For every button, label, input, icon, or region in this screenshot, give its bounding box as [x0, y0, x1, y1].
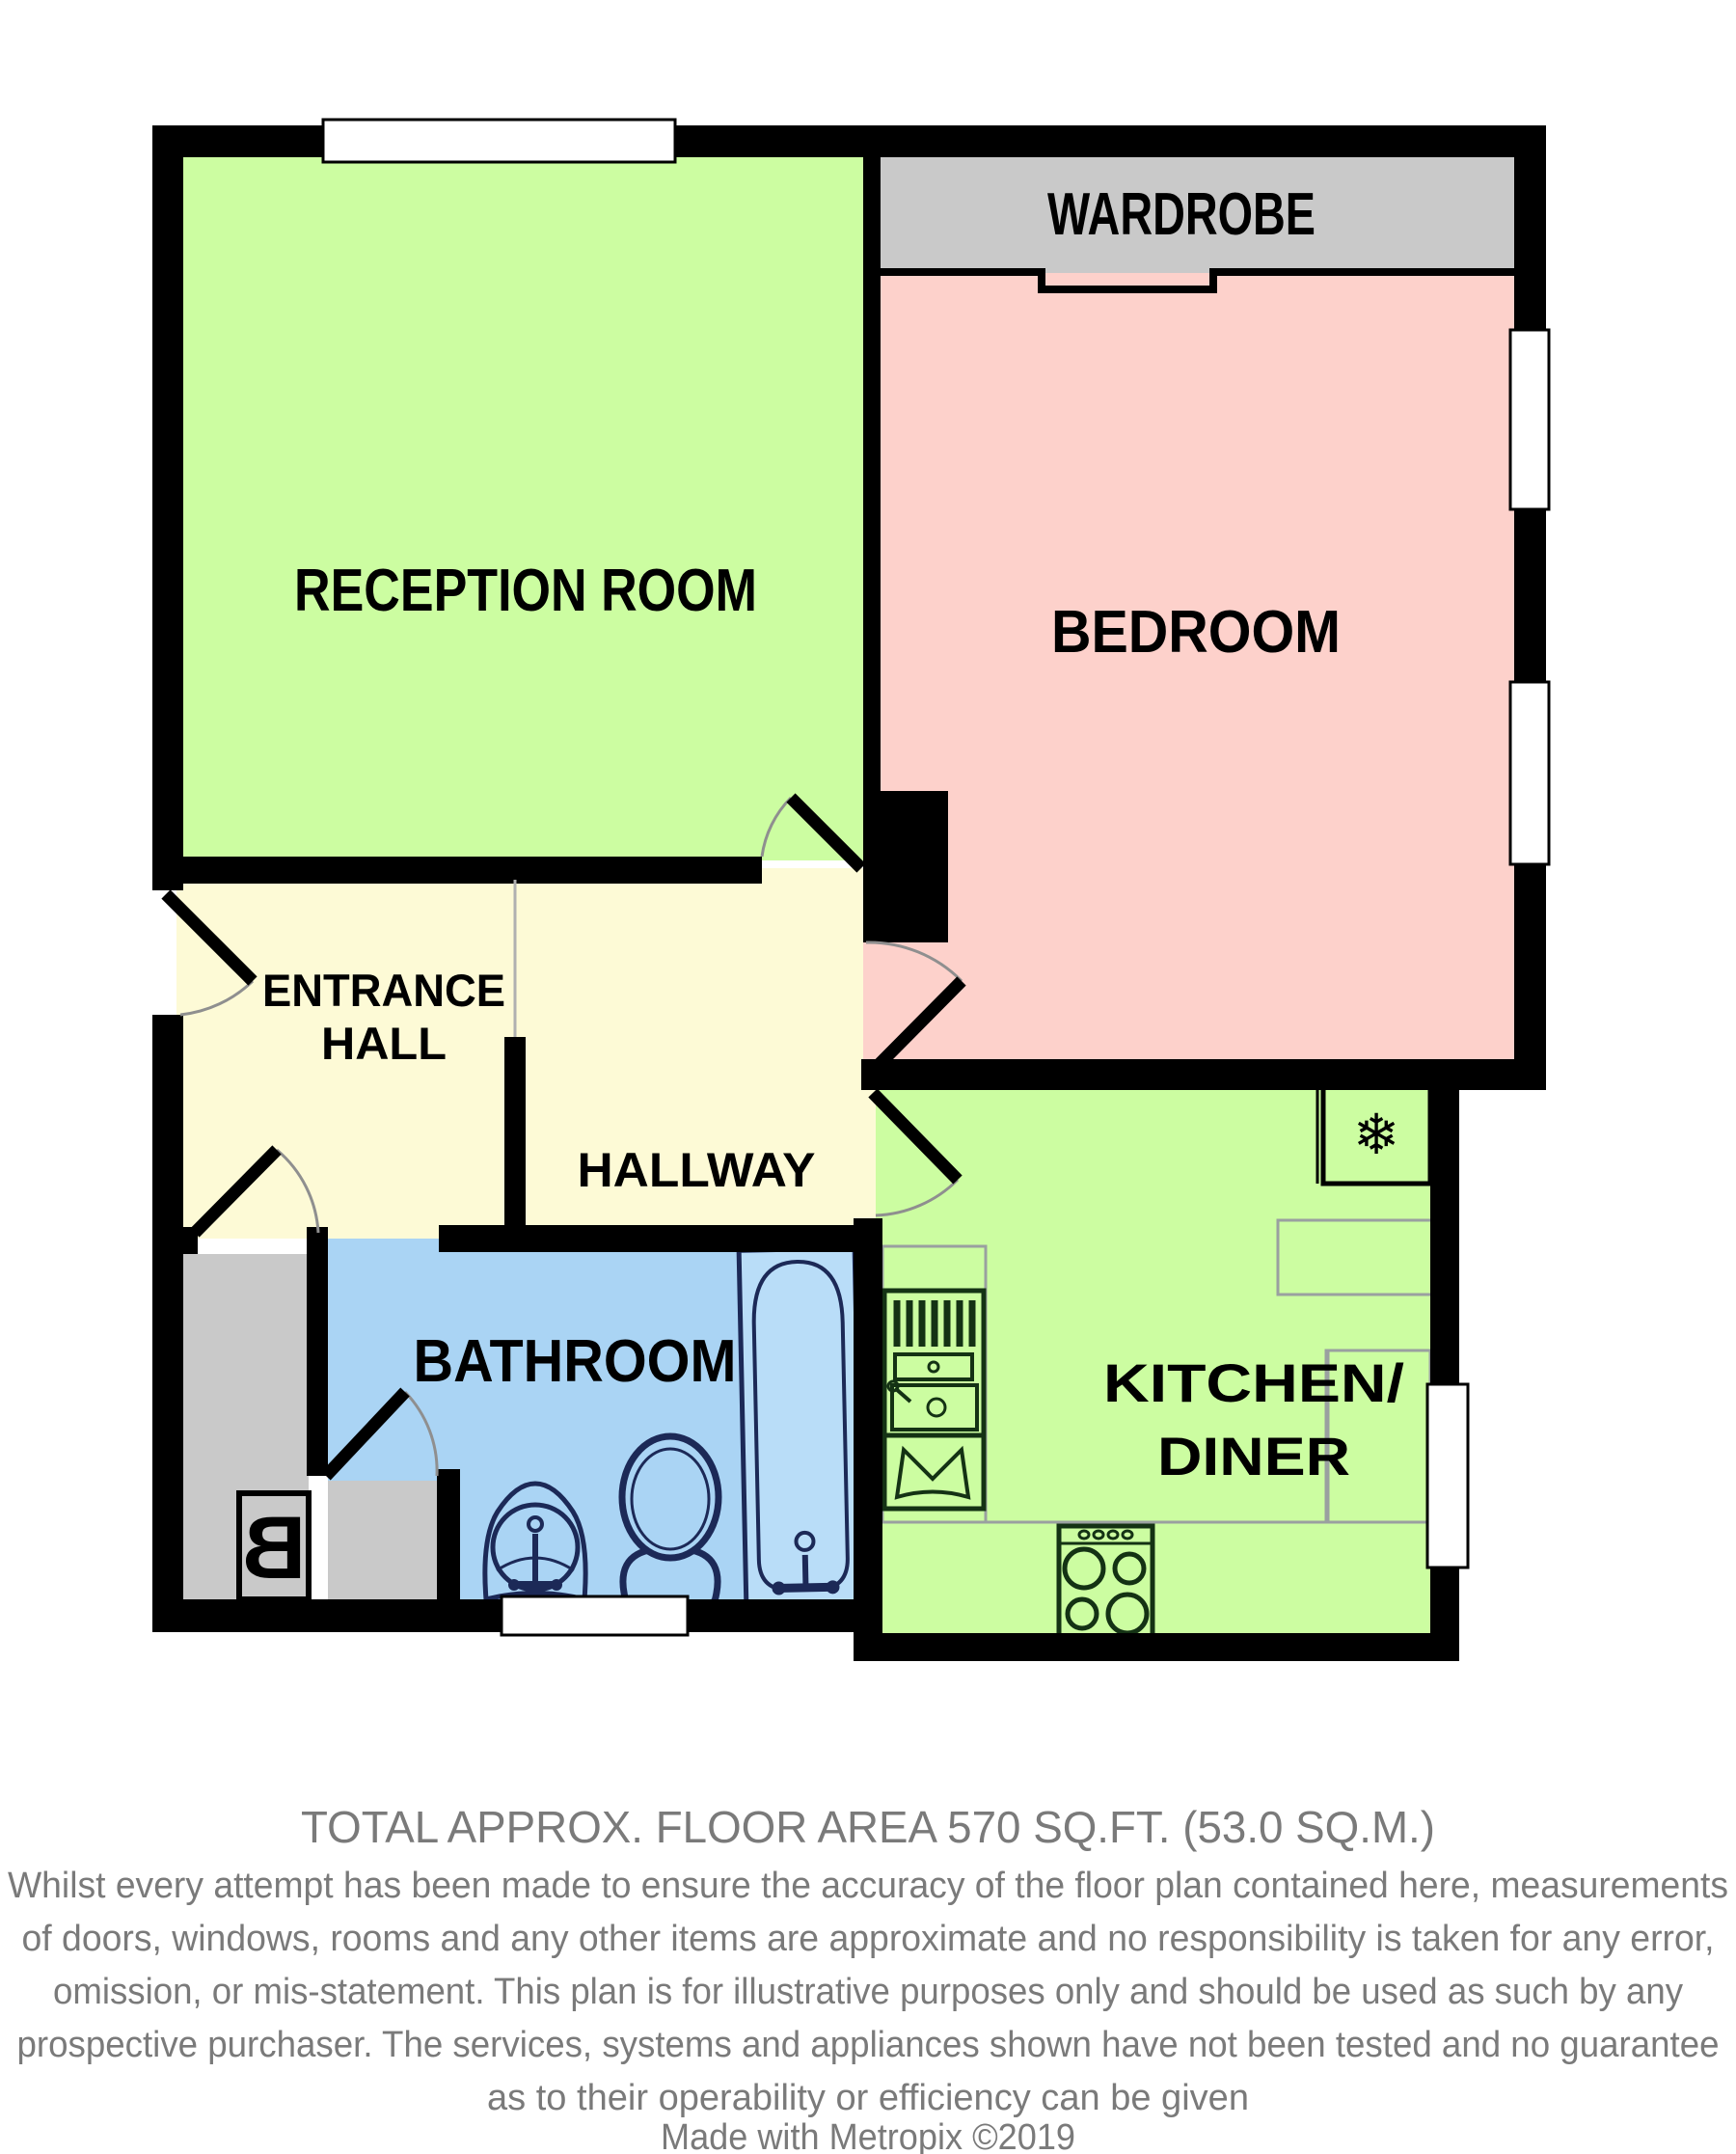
window-reception-top: [323, 120, 675, 162]
wall-block: [863, 791, 948, 942]
boiler-box: B: [239, 1493, 309, 1599]
lobby-gray-block: [328, 1481, 437, 1599]
metropix-credit: Made with Metropix ©2019: [661, 2117, 1075, 2154]
floor-area-title: TOTAL APPROX. FLOOR AREA 570 SQ.FT. (53.…: [301, 1802, 1435, 1852]
window-kitchen-right: [1427, 1384, 1468, 1568]
kitchen-sink-unit: [884, 1291, 984, 1435]
wall-right: [1514, 125, 1546, 1090]
window-bathroom-bottom: [502, 1596, 688, 1635]
room-label-bathroom: BATHROOM: [414, 1328, 737, 1395]
room-label-hallway: HALLWAY: [578, 1143, 816, 1197]
wall-bedroom-bottom: [861, 1059, 1546, 1090]
window-bedroom-right-2: [1510, 682, 1549, 864]
wall-kitchen-bottom: [854, 1633, 1459, 1661]
room-label-kitchen-line1: KITCHEN/: [1103, 1352, 1405, 1413]
disclaimer-line-5: as to their operability or efficiency ca…: [487, 2078, 1249, 2118]
wall-left-upper: [152, 125, 183, 890]
wall-cupboard-stub: [307, 1227, 328, 1476]
wall-divider-bath-kitchen: [854, 1218, 882, 1661]
wall-partition-stub: [504, 1037, 526, 1240]
disclaimer-line-2: of doors, windows, rooms and any other i…: [22, 1919, 1715, 1959]
room-label-bedroom: BEDROOM: [1051, 599, 1341, 666]
window-bedroom-right-1: [1510, 330, 1549, 509]
bedroom-floor: [881, 273, 1514, 1064]
room-label-kitchen-line2: DINER: [1157, 1426, 1350, 1486]
wall-bathroom-top: [439, 1225, 863, 1252]
wall-reception-bottom: [152, 857, 762, 884]
disclaimer-line-1: Whilst every attempt has been made to en…: [8, 1866, 1728, 1906]
bathtub: [739, 1248, 862, 1610]
room-label-entrance-hall-line2: HALL: [321, 1018, 447, 1069]
wall-left-lower: [152, 1015, 183, 1632]
floorplan-page: ❄ B: [0, 0, 1736, 2154]
room-label-wardrobe: WARDROBE: [1047, 181, 1316, 248]
fridge-freezer: ❄: [1317, 1082, 1430, 1184]
kitchen-appliance: [884, 1435, 984, 1509]
disclaimer-line-4: prospective purchaser. The services, sys…: [17, 2025, 1720, 2065]
floorplan-svg: ❄ B: [0, 0, 1736, 2154]
wall-bath-stub: [437, 1469, 460, 1599]
wall-kitchen-right: [1430, 1090, 1459, 1661]
reception-room-floor: [176, 152, 863, 860]
hob: [1059, 1526, 1153, 1638]
disclaimer-line-3: omission, or mis-statement. This plan is…: [53, 1972, 1683, 2012]
bedroom-floor-notch: [863, 942, 881, 1064]
wall-reception-right: [863, 125, 881, 793]
room-label-reception: RECEPTION ROOM: [294, 558, 757, 624]
snowflake-icon: ❄: [1353, 1102, 1400, 1167]
boiler-letter: B: [242, 1499, 306, 1597]
toilet: [622, 1436, 719, 1610]
room-label-entrance-hall-line1: ENTRANCE: [262, 965, 505, 1016]
